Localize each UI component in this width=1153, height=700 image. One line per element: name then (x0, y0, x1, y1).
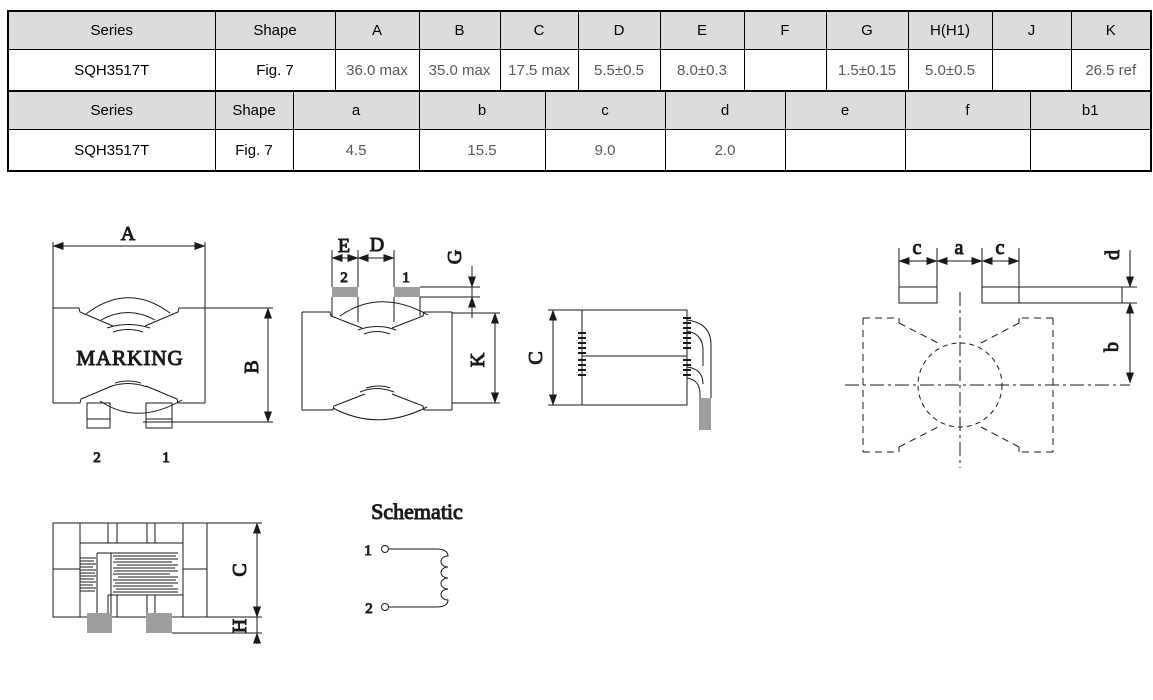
col-header: Series (8, 11, 215, 50)
lead-terminal (699, 398, 711, 430)
dim-label-C: C (229, 563, 251, 576)
col-header: K (1071, 11, 1151, 50)
dim-value (905, 130, 1030, 172)
dim-value: 26.5 ref (1071, 50, 1151, 92)
dim-label-H: H (229, 619, 251, 633)
pin-label-1: 1 (402, 270, 410, 286)
dim-value: 1.5±0.15 (826, 50, 908, 92)
schematic-pin-1: 1 (364, 543, 372, 559)
section-view: C H (53, 523, 262, 644)
dim-value: 36.0 max (335, 50, 419, 92)
dim-label-A: A (121, 223, 136, 245)
dim-value (744, 50, 826, 92)
datasheet-page: Series Shape A B C D E F G H(H1) J K SQH… (0, 0, 1153, 700)
terminal-dot-2 (382, 604, 389, 611)
bottom-view: E D 2 1 G K (302, 234, 500, 420)
terminal-dot-1 (382, 546, 389, 553)
dim-value (785, 130, 905, 172)
front-pin-2 (87, 403, 110, 428)
pin-label-2: 2 (93, 450, 101, 466)
table-header-row: Series Shape a b c d e f b1 (8, 91, 1151, 130)
dim-value: 5.0±0.5 (908, 50, 992, 92)
section-pad-left (87, 613, 112, 633)
land-pad-right (982, 287, 1122, 303)
dim-label-d: d (1102, 250, 1124, 260)
dim-label-B: B (241, 360, 263, 373)
dim-label-E: E (338, 235, 350, 257)
land-pattern-view: c a c d b (845, 237, 1137, 468)
front-view: A 2 1 MARKING B (53, 223, 273, 466)
mechanical-drawings: A 2 1 MARKING B (0, 170, 1153, 700)
col-header: b (419, 91, 545, 130)
table-data-row: SQH3517T Fig. 7 36.0 max 35.0 max 17.5 m… (8, 50, 1151, 92)
dim-label-c-right: c (996, 237, 1005, 259)
col-header: Shape (215, 11, 335, 50)
dim-value: 2.0 (665, 130, 785, 172)
col-header: d (665, 91, 785, 130)
shape-value: Fig. 7 (215, 130, 293, 172)
winding-hatch (80, 556, 178, 592)
series-value: SQH3517T (8, 50, 215, 92)
dim-value: 9.0 (545, 130, 665, 172)
col-header: c (545, 91, 665, 130)
col-header: B (419, 11, 500, 50)
dim-value: 17.5 max (500, 50, 578, 92)
dim-label-K: K (467, 352, 489, 367)
dim-label-c-left: c (913, 237, 922, 259)
col-header: F (744, 11, 826, 50)
dim-value (1030, 130, 1151, 172)
col-header: C (500, 11, 578, 50)
col-header: b1 (1030, 91, 1151, 130)
dim-label-a: a (955, 237, 964, 259)
dim-value (992, 50, 1071, 92)
col-header: G (826, 11, 908, 50)
pad-2 (332, 287, 358, 297)
dimension-table-secondary: Series Shape a b c d e f b1 SQH3517T Fig… (7, 90, 1152, 172)
section-body (53, 523, 207, 617)
dim-value: 35.0 max (419, 50, 500, 92)
dim-value: 4.5 (293, 130, 419, 172)
col-header: H(H1) (908, 11, 992, 50)
dim-label-D: D (370, 234, 384, 256)
col-header: f (905, 91, 1030, 130)
col-header: J (992, 11, 1071, 50)
col-header: E (660, 11, 744, 50)
section-pad-right (146, 613, 172, 633)
pin-label-2: 2 (340, 270, 348, 286)
col-header: e (785, 91, 905, 130)
side-view: C (525, 310, 711, 430)
dimension-table-primary: Series Shape A B C D E F G H(H1) J K SQH… (7, 10, 1152, 92)
pin-label-1: 1 (162, 450, 170, 466)
inductor-coil-icon (436, 549, 448, 607)
dim-label-C: C (525, 351, 547, 364)
col-header: D (578, 11, 660, 50)
schematic-title: Schematic (371, 499, 463, 524)
shape-value: Fig. 7 (215, 50, 335, 92)
dim-label-G: G (444, 250, 466, 264)
side-view-body (582, 310, 687, 405)
dim-value: 15.5 (419, 130, 545, 172)
series-value: SQH3517T (8, 130, 215, 172)
col-header: Shape (215, 91, 293, 130)
table-header-row: Series Shape A B C D E F G H(H1) J K (8, 11, 1151, 50)
col-header: Series (8, 91, 215, 130)
land-pad-left (899, 287, 937, 303)
pad-1 (394, 287, 420, 297)
schematic-pin-2: 2 (365, 601, 373, 617)
col-header: A (335, 11, 419, 50)
col-header: a (293, 91, 419, 130)
marking-text: MARKING (76, 346, 183, 370)
dim-value: 5.5±0.5 (578, 50, 660, 92)
dim-label-b: b (1101, 342, 1123, 352)
schematic: Schematic 1 2 (364, 499, 463, 617)
dim-value: 8.0±0.3 (660, 50, 744, 92)
table-data-row: SQH3517T Fig. 7 4.5 15.5 9.0 2.0 (8, 130, 1151, 172)
